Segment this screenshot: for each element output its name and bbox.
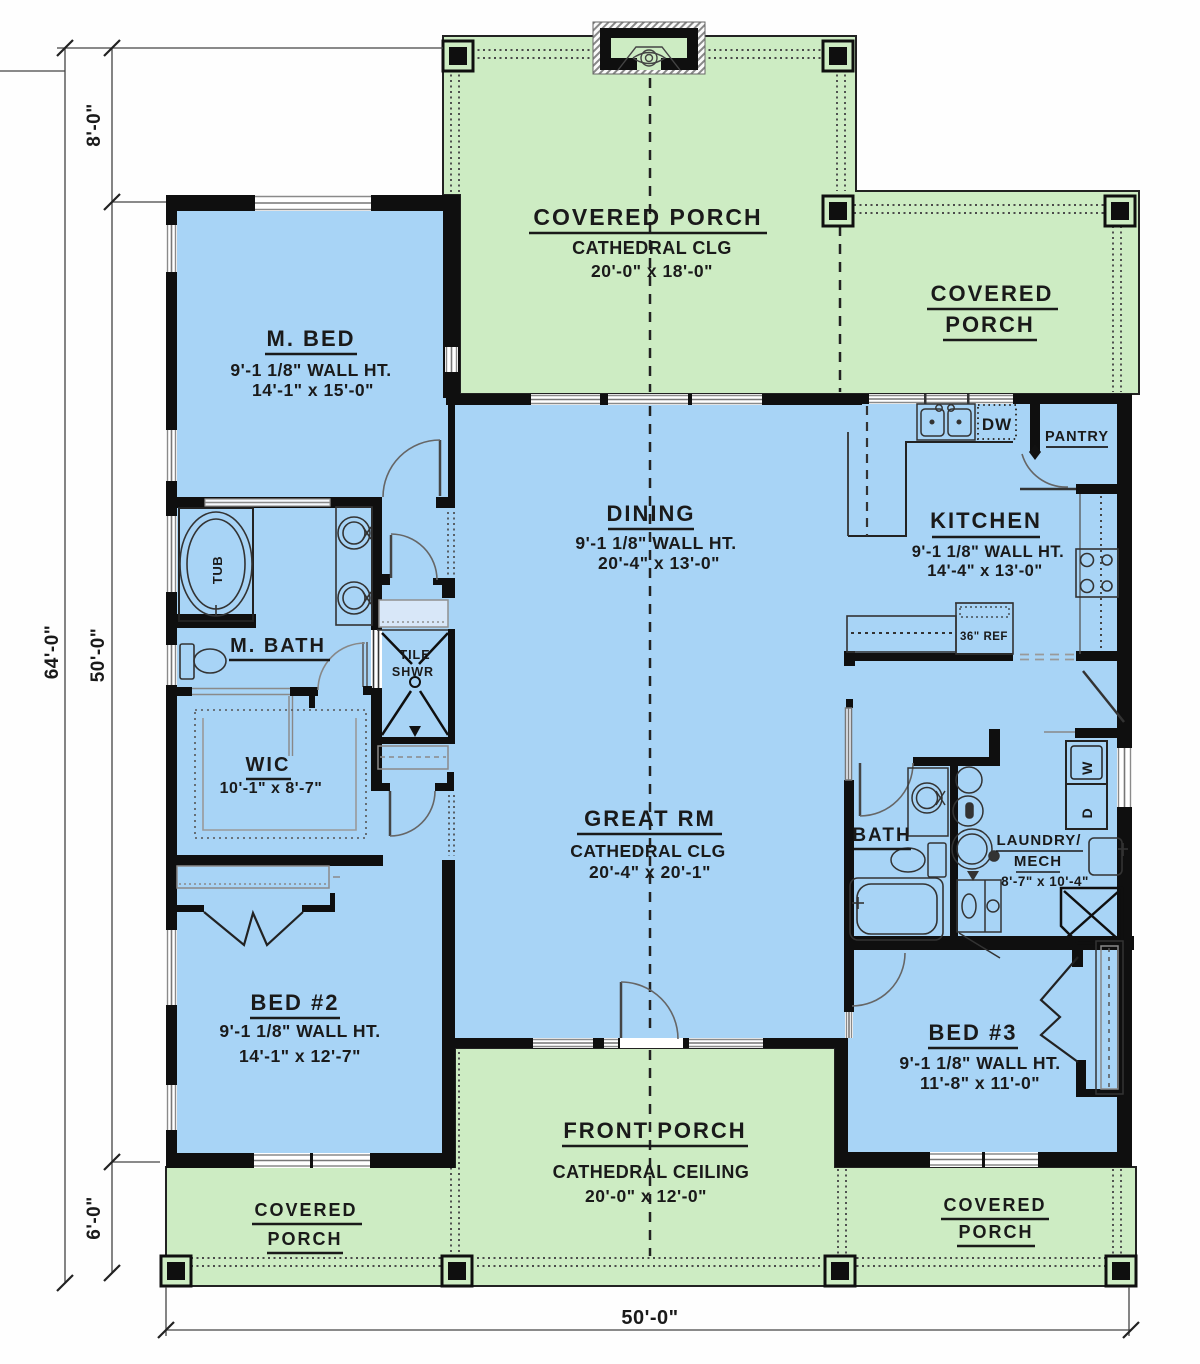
svg-text:9'-1 1/8" WALL HT.: 9'-1 1/8" WALL HT. (230, 360, 391, 380)
svg-text:20'-0" x 18'-0": 20'-0" x 18'-0" (591, 261, 713, 281)
svg-text:10'-1" x 8'-7": 10'-1" x 8'-7" (220, 780, 323, 797)
svg-text:64'-0": 64'-0" (42, 625, 63, 680)
svg-text:9'-1 1/8" WALL HT.: 9'-1 1/8" WALL HT. (575, 533, 736, 553)
svg-text:14'-1" x 15'-0": 14'-1" x 15'-0" (252, 380, 374, 400)
svg-text:FRONT PORCH: FRONT PORCH (563, 1118, 746, 1143)
svg-text:9'-1 1/8" WALL HT.: 9'-1 1/8" WALL HT. (912, 543, 1064, 561)
svg-text:36" REF: 36" REF (960, 631, 1008, 643)
svg-text:COVERED: COVERED (943, 1195, 1046, 1215)
svg-text:COVERED PORCH: COVERED PORCH (533, 204, 762, 230)
svg-text:M. BATH: M. BATH (230, 635, 326, 657)
svg-text:CATHEDRAL CLG: CATHEDRAL CLG (570, 841, 726, 861)
svg-text:COVERED: COVERED (931, 281, 1054, 306)
svg-text:KITCHEN: KITCHEN (930, 508, 1042, 533)
svg-text:DINING: DINING (607, 501, 696, 526)
svg-text:GREAT RM: GREAT RM (584, 806, 716, 831)
svg-text:CATHEDRAL CEILING: CATHEDRAL CEILING (553, 1162, 750, 1182)
svg-text:WIC: WIC (246, 754, 291, 776)
svg-text:LAUNDRY/: LAUNDRY/ (997, 832, 1082, 849)
svg-text:D: D (1079, 808, 1095, 819)
svg-text:TILE: TILE (399, 648, 430, 662)
svg-text:11'-8" x 11'-0": 11'-8" x 11'-0" (920, 1073, 1040, 1093)
svg-text:PANTRY: PANTRY (1045, 429, 1109, 445)
svg-text:50'-0": 50'-0" (621, 1307, 678, 1329)
svg-text:8'-0": 8'-0" (84, 103, 105, 147)
svg-text:20'-4" x 20'-1": 20'-4" x 20'-1" (589, 862, 711, 882)
svg-text:50'-0": 50'-0" (88, 628, 109, 683)
svg-text:TUB: TUB (210, 556, 225, 584)
svg-text:M. BED: M. BED (267, 326, 356, 351)
svg-text:9'-1 1/8" WALL HT.: 9'-1 1/8" WALL HT. (219, 1021, 380, 1041)
svg-text:DW: DW (982, 415, 1012, 434)
svg-text:BED #3: BED #3 (928, 1020, 1017, 1045)
svg-text:W: W (1079, 761, 1095, 775)
svg-text:14'-4" x 13'-0": 14'-4" x 13'-0" (927, 562, 1042, 580)
svg-text:9'-1 1/8" WALL HT.: 9'-1 1/8" WALL HT. (899, 1053, 1060, 1073)
svg-text:20'-4" x 13'-0": 20'-4" x 13'-0" (598, 553, 720, 573)
svg-text:SHWR: SHWR (392, 665, 434, 679)
svg-text:CATHEDRAL CLG: CATHEDRAL CLG (572, 238, 732, 258)
svg-text:BATH: BATH (852, 825, 911, 846)
svg-text:6'-0": 6'-0" (84, 1196, 105, 1240)
svg-text:8'-7" x 10'-4": 8'-7" x 10'-4" (1001, 874, 1089, 889)
svg-text:MECH: MECH (1014, 853, 1062, 870)
svg-text:PORCH: PORCH (267, 1229, 342, 1249)
svg-text:20'-0" x 12'-0": 20'-0" x 12'-0" (585, 1186, 707, 1206)
svg-text:PORCH: PORCH (958, 1222, 1033, 1242)
svg-text:14'-1" x 12'-7": 14'-1" x 12'-7" (239, 1046, 361, 1066)
svg-text:PORCH: PORCH (945, 312, 1034, 337)
svg-text:BED #2: BED #2 (250, 990, 339, 1015)
svg-text:COVERED: COVERED (254, 1200, 357, 1220)
